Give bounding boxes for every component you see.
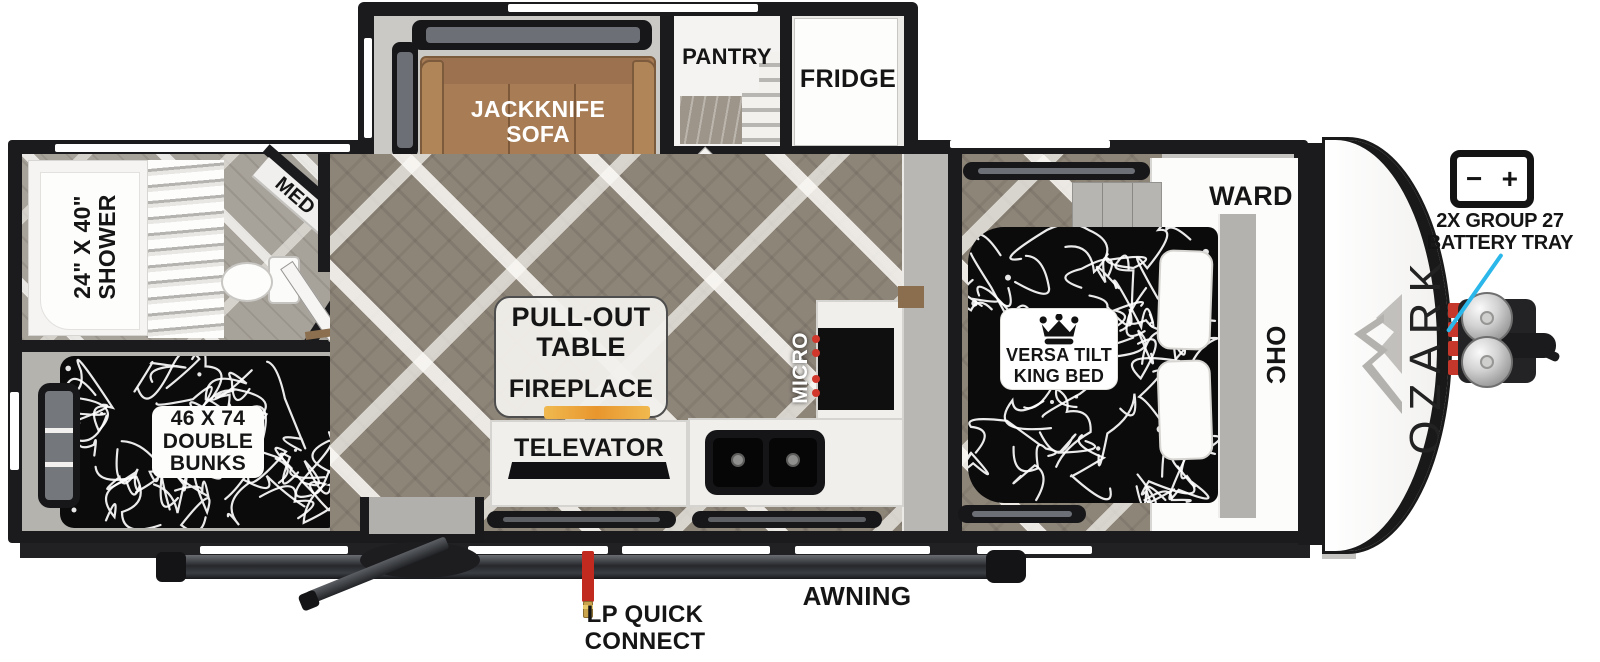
- wall-bath-bunk: [22, 340, 330, 352]
- pullout-label-line2: TABLE: [536, 333, 626, 363]
- bedroom-window-top-glass: [978, 168, 1135, 174]
- sofa-label-line1: JACKKNIFE: [471, 97, 605, 122]
- kitchen-window-right: [692, 511, 882, 528]
- battery-icon: − +: [1450, 150, 1534, 208]
- range-micro-unit: [818, 328, 894, 410]
- range-knob: [812, 335, 820, 343]
- awning-label-text: AWNING: [803, 582, 912, 611]
- window-slot: [508, 4, 758, 12]
- battery-label: 2X GROUP 27 BATTERY TRAY: [1418, 209, 1582, 255]
- range-knob: [812, 389, 820, 397]
- battery-label-line1: 2X GROUP 27: [1436, 210, 1564, 232]
- sofa-window: [412, 20, 652, 50]
- wardrobe-panel: [1218, 214, 1256, 518]
- bunk-label-line1: 46 X 74: [171, 408, 246, 431]
- lp-quick-connect-label: LP QUICK CONNECT: [545, 602, 745, 656]
- pullout-label-line1: PULL-OUT: [512, 303, 651, 333]
- shower-label-line1: 24" X 40": [70, 195, 95, 299]
- ward-label-text: WARD: [1209, 182, 1293, 212]
- king-bed-label: VERSA TILT KING BED: [1000, 346, 1118, 386]
- fireplace: [544, 406, 650, 419]
- bedroom-window-bottom-glass: [972, 511, 1072, 517]
- fireplace-label-text: FIREPLACE: [509, 376, 653, 404]
- bedroom-ohc-seam: [1102, 183, 1103, 229]
- lp-label-line2: CONNECT: [585, 629, 706, 656]
- awning-label: AWNING: [757, 582, 957, 610]
- micro-label-text: MICRO: [789, 332, 812, 404]
- bedroom-window-bottom: [958, 505, 1086, 523]
- pantry-label-text: PANTRY: [682, 45, 772, 69]
- pantry-wood-floor: [680, 96, 742, 144]
- ohc-label: OHC: [1261, 305, 1291, 405]
- range-knob: [812, 349, 820, 357]
- televator-label-text: TELEVATOR: [514, 435, 664, 463]
- sofa-window-glass: [426, 27, 640, 43]
- bedroom-window-top: [963, 162, 1150, 180]
- crown-icon: [1036, 314, 1082, 346]
- battery-minus: −: [1466, 163, 1482, 195]
- fridge-label: FRIDGE: [792, 66, 904, 94]
- bed-pillow-top: [1156, 249, 1213, 351]
- bedroom-ohc-seam: [1132, 183, 1133, 229]
- televator-tv: [508, 462, 670, 479]
- battery-label-line2: BATTERY TRAY: [1427, 232, 1573, 254]
- battery-plus: +: [1502, 163, 1518, 195]
- sofa-label: JACKKNIFE SOFA: [430, 94, 646, 150]
- range-knob: [812, 375, 820, 383]
- window-slot: [364, 38, 372, 138]
- awning-end-cap-left: [156, 552, 186, 582]
- propane-tank-top-valve: [1480, 311, 1494, 325]
- sofa-backrest: [424, 58, 652, 84]
- kitchen-bedroom-partition: [902, 154, 948, 531]
- clearance-light-top: [1407, 156, 1413, 173]
- pantry-label: PANTRY: [664, 44, 790, 70]
- sofa-label-line2: SOFA: [506, 122, 570, 147]
- awning-end-cap-right: [986, 550, 1026, 583]
- trim-slot: [622, 546, 770, 554]
- window-slot: [10, 392, 19, 470]
- ohc-label-text: OHC: [1262, 326, 1291, 385]
- micro-label: MICRO: [789, 313, 813, 423]
- kitchen-window-left: [487, 511, 676, 528]
- televator-label: TELEVATOR: [498, 436, 680, 462]
- bed-pillow-bottom: [1156, 359, 1213, 461]
- trim-slot: [200, 546, 348, 554]
- fireplace-label: FIREPLACE: [500, 376, 662, 404]
- bunk-window-glass: [45, 391, 73, 500]
- toilet-bowl: [221, 262, 273, 302]
- clearance-light-bottom: [1407, 518, 1413, 535]
- shower-label: 24" X 40" SHOWER: [67, 152, 123, 342]
- bedroom-wall: [948, 154, 962, 531]
- kitchen-window-left-glass: [503, 517, 660, 522]
- trim-slot: [55, 144, 350, 152]
- shower-label-line2: SHOWER: [95, 194, 120, 299]
- slideout-side-window-glass: [397, 52, 413, 148]
- ward-label: WARD: [1190, 183, 1312, 211]
- shower-door-slats: [148, 160, 224, 338]
- lp-quick-connect-pipe: [582, 551, 594, 602]
- wall-bath-right: [318, 154, 330, 272]
- entry-threshold: [360, 497, 484, 543]
- sink-drain-right: [786, 453, 800, 467]
- front-cap: OZARK: [1322, 137, 1452, 554]
- pullout-table-label: PULL-OUT TABLE: [500, 304, 662, 362]
- trim-slot: [950, 140, 1110, 148]
- fridge-label-text: FRIDGE: [800, 66, 896, 94]
- bunk-label: 46 X 74 DOUBLE BUNKS: [152, 408, 264, 476]
- front-wall: [1298, 143, 1324, 545]
- propane-tank-bottom-valve: [1480, 355, 1494, 369]
- wood-countertop: [898, 286, 924, 308]
- bunk-label-line3: BUNKS: [170, 453, 246, 476]
- bunk-label-line2: DOUBLE: [163, 431, 253, 454]
- bunk-window-slat: [45, 462, 73, 467]
- floorplan-canvas: JACKKNIFE SOFA PANTRY FRIDGE 24" X 40" S…: [0, 0, 1600, 662]
- lp-label-line1: LP QUICK: [587, 602, 704, 629]
- kitchen-window-right-glass: [708, 517, 866, 522]
- brand-logo: OZARK: [1404, 253, 1448, 455]
- trim-slot: [795, 546, 930, 554]
- mountain-icon: [1354, 290, 1404, 418]
- king-bed-label-line1: VERSA TILT: [1006, 345, 1112, 366]
- bedroom-ohc-cabinet: [1072, 182, 1162, 230]
- sink-drain-left: [731, 453, 745, 467]
- brand-text: OZARK: [1401, 253, 1450, 455]
- king-bed-label-line2: KING BED: [1014, 366, 1104, 387]
- slideout-side-window: [392, 42, 418, 158]
- bunk-window-slat: [45, 428, 73, 433]
- bunk-window: [38, 383, 80, 508]
